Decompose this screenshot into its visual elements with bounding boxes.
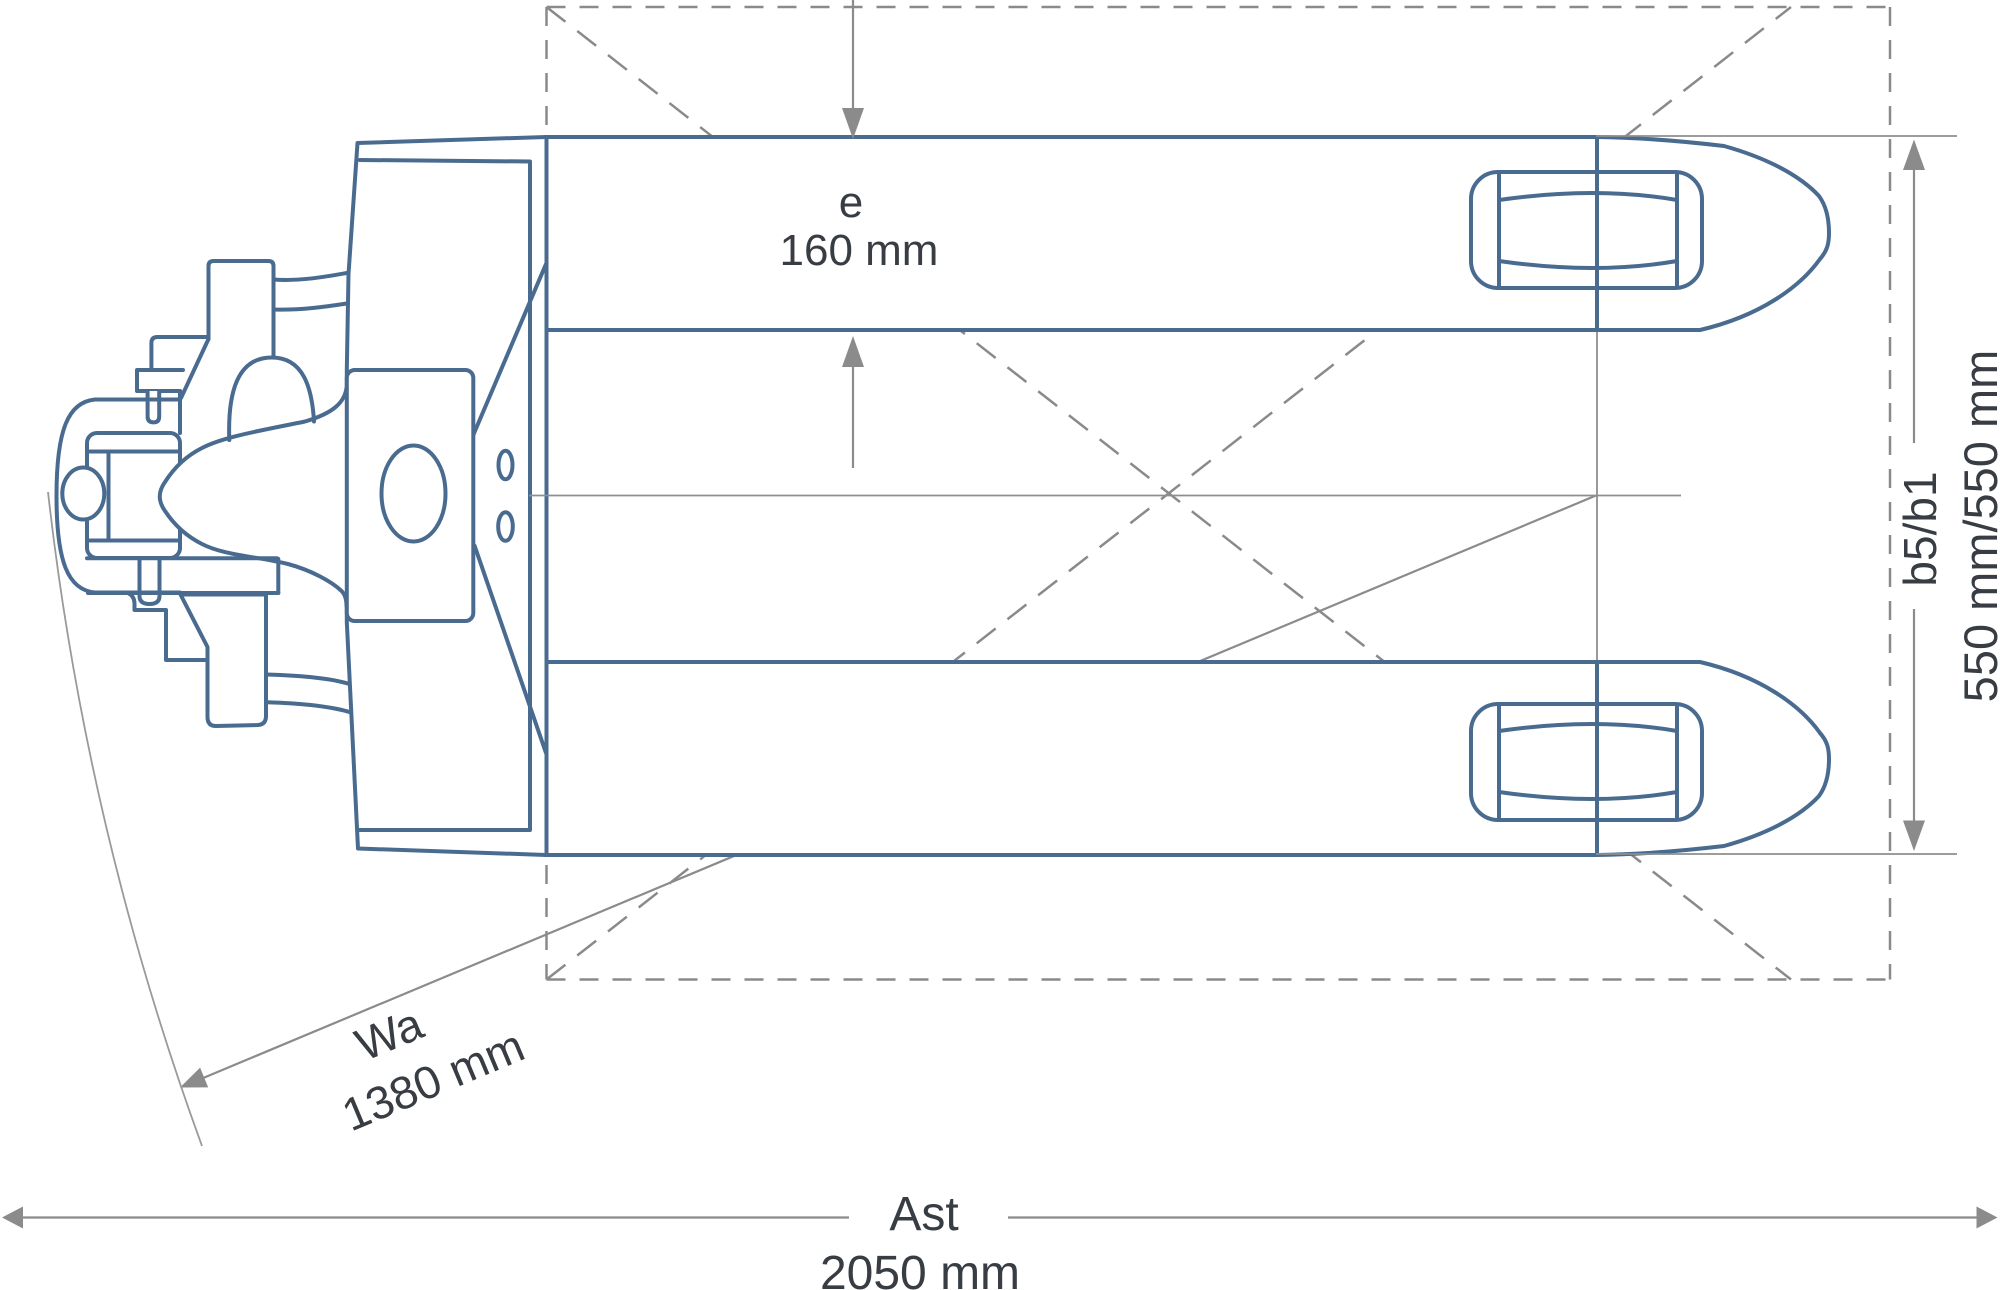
- svg-text:2050 mm: 2050 mm: [820, 1247, 1020, 1290]
- svg-text:e: e: [839, 178, 863, 227]
- svg-text:550 mm/550 mm: 550 mm/550 mm: [1954, 350, 2000, 703]
- svg-text:b5/b1: b5/b1: [1894, 471, 1946, 586]
- svg-text:160 mm: 160 mm: [780, 226, 939, 275]
- svg-text:Ast: Ast: [889, 1188, 958, 1241]
